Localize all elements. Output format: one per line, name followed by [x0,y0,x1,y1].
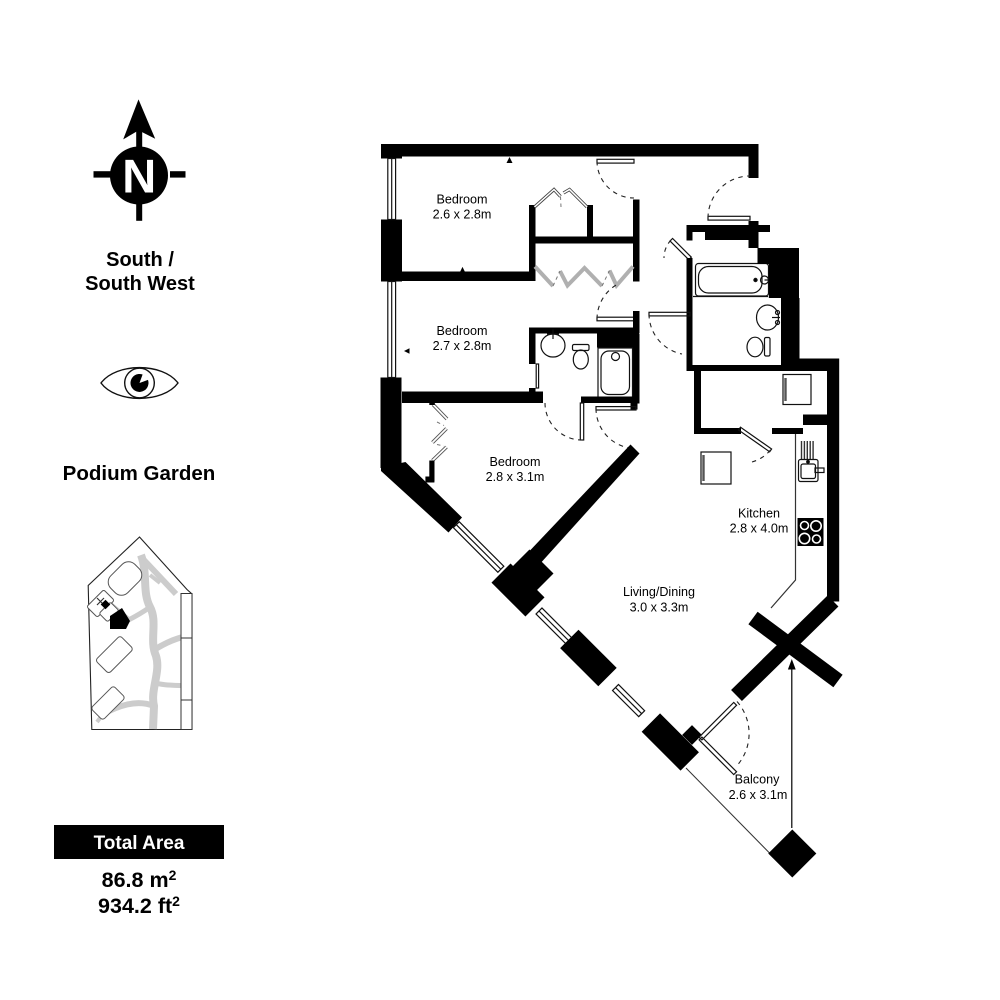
svg-text:2.8 x 3.1m: 2.8 x 3.1m [486,470,545,484]
svg-text:Bedroom: Bedroom [489,455,540,469]
svg-text:2.6 x 2.8m: 2.6 x 2.8m [433,208,492,222]
svg-text:Kitchen: Kitchen [738,507,780,521]
svg-text:Balcony: Balcony [735,773,781,787]
svg-text:Bedroom: Bedroom [436,324,487,338]
svg-text:934.2 ft2: 934.2 ft2 [98,893,180,918]
svg-text:South /: South / [106,249,174,271]
svg-text:86.8 m2: 86.8 m2 [102,867,177,892]
svg-text:Podium Garden: Podium Garden [63,462,216,485]
svg-text:N: N [122,150,156,203]
svg-text:3.0 x 3.3m: 3.0 x 3.3m [630,601,689,615]
svg-text:Total Area: Total Area [94,833,185,854]
svg-text:Living/Dining: Living/Dining [623,585,695,599]
svg-text:2.7 x 2.8m: 2.7 x 2.8m [433,339,492,353]
svg-text:Bedroom: Bedroom [436,193,487,207]
svg-text:2.6 x 3.1m: 2.6 x 3.1m [729,788,788,802]
svg-text:South West: South West [85,273,195,295]
svg-text:2.8 x 4.0m: 2.8 x 4.0m [730,522,789,536]
